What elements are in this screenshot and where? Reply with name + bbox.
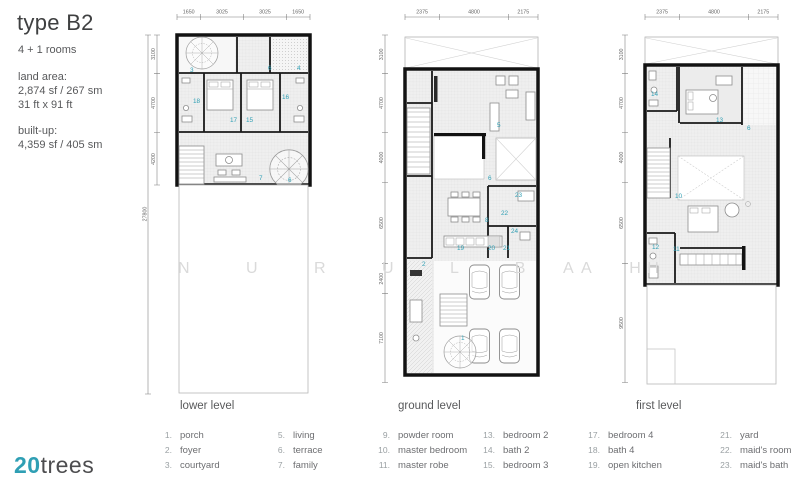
room-number: 19 bbox=[457, 245, 465, 252]
dimension-label: 4800 bbox=[708, 10, 720, 16]
legend-item: 7.family bbox=[265, 458, 323, 473]
legend-item-label: bath 4 bbox=[608, 443, 634, 458]
floorplan-sheet: type B2 4 + 1 rooms land area: 2,874 sf … bbox=[0, 0, 800, 477]
legend-item-number: 10. bbox=[370, 443, 390, 458]
dimension-label: 2375 bbox=[416, 10, 428, 16]
staircase bbox=[407, 108, 430, 174]
land-area-block: land area: 2,874 sf / 267 sm 31 ft x 91 … bbox=[18, 70, 102, 112]
legend-item-label: living bbox=[293, 428, 315, 443]
legend-item: 14.bath 2 bbox=[475, 443, 548, 458]
legend-item-label: courtyard bbox=[180, 458, 220, 473]
ground-level-floor-plan: 2375 4800 2175 3100 4700 4000 6500 2400 … bbox=[368, 8, 548, 398]
legend-item: 13.bedroom 2 bbox=[475, 428, 548, 443]
legend-item: 2.foyer bbox=[152, 443, 265, 458]
legend-item: 21.yard bbox=[712, 428, 791, 443]
room-number: 5 bbox=[497, 122, 501, 129]
yard-outline bbox=[179, 185, 308, 393]
legend-title: lower level bbox=[180, 400, 372, 412]
dimension-label: 3025 bbox=[259, 10, 271, 16]
legend-item-number: 7. bbox=[265, 458, 285, 473]
dimension-label: 1650 bbox=[183, 10, 195, 16]
dimension-label: 4200 bbox=[151, 153, 157, 165]
garage-staircase bbox=[440, 294, 467, 326]
open-roof-pergola bbox=[645, 37, 778, 65]
room-number: 17 bbox=[230, 117, 238, 124]
dimension-label: 6500 bbox=[379, 217, 385, 229]
room-number: 18 bbox=[193, 98, 201, 105]
legend-item: 10.master bedroom bbox=[370, 443, 475, 458]
open-roof-pergola bbox=[405, 37, 538, 69]
legend-item-label: maid's bath bbox=[740, 458, 788, 473]
dimension-label: 2375 bbox=[656, 10, 668, 16]
legend-item-label: maid's room bbox=[740, 443, 791, 458]
legend-item-number: 19. bbox=[580, 458, 600, 473]
room-number: 8 bbox=[485, 217, 489, 224]
room-number: 13 bbox=[716, 117, 724, 124]
room-number: 3 bbox=[190, 67, 194, 74]
room-number: 6 bbox=[288, 177, 292, 184]
room-number: 2 bbox=[422, 261, 426, 268]
legend-item-number: 14. bbox=[475, 443, 495, 458]
legend-item: 17.bedroom 4 bbox=[580, 428, 712, 443]
terrace-opening bbox=[496, 138, 536, 180]
legend-item-number: 3. bbox=[152, 458, 172, 473]
room-number: 21 bbox=[503, 245, 511, 252]
legend-ground-level: ground level 9.powder room 10.master bed… bbox=[370, 400, 590, 473]
room-number: 16 bbox=[282, 94, 290, 101]
legend-item-number: 18. bbox=[580, 443, 600, 458]
legend-item-label: open kitchen bbox=[608, 458, 662, 473]
legend-item-label: bath 2 bbox=[503, 443, 529, 458]
room-number: 11 bbox=[673, 246, 680, 253]
legend-item-number: 2. bbox=[152, 443, 172, 458]
yard-outline bbox=[647, 285, 776, 384]
dimension-label: 4000 bbox=[619, 152, 625, 164]
legend-item: 6.terrace bbox=[265, 443, 323, 458]
legend-item-number: 15. bbox=[475, 458, 495, 473]
legend-item-number: 21. bbox=[712, 428, 732, 443]
dimension-label: 3025 bbox=[216, 10, 228, 16]
dimension-label: 6500 bbox=[619, 217, 625, 229]
dimension-label: 2175 bbox=[517, 10, 529, 16]
staircase bbox=[179, 146, 204, 184]
legend-item-number: 23. bbox=[712, 458, 732, 473]
dimension-label: 4000 bbox=[379, 152, 385, 164]
room-number: 4 bbox=[297, 65, 301, 72]
staircase bbox=[647, 148, 670, 198]
entry-tree bbox=[444, 336, 476, 368]
developer-logo: 20trees bbox=[14, 452, 94, 477]
dimension-label: 27800 bbox=[143, 207, 149, 222]
legend-item-label: yard bbox=[740, 428, 758, 443]
legend-item-number: 11. bbox=[370, 458, 390, 473]
legend-item: 19.open kitchen bbox=[580, 458, 712, 473]
room-number: 10 bbox=[675, 193, 683, 200]
legend-item-number: 17. bbox=[580, 428, 600, 443]
room-number: 15 bbox=[246, 117, 254, 124]
room-number: 1 bbox=[461, 335, 465, 342]
dimension-label: 3100 bbox=[379, 48, 385, 60]
legend-item-label: family bbox=[293, 458, 318, 473]
logo-word: trees bbox=[41, 452, 95, 477]
legend-first-level: first level 17.bedroom 4 18.bath 4 19.op… bbox=[580, 400, 800, 473]
legend-item: 11.master robe bbox=[370, 458, 475, 473]
land-area-dims: 31 ft x 91 ft bbox=[18, 98, 102, 112]
legend-item: 3.courtyard bbox=[152, 458, 265, 473]
room-number: 7 bbox=[259, 175, 263, 182]
room-number: 12 bbox=[652, 244, 660, 251]
legend-title: ground level bbox=[398, 400, 590, 412]
legend-item: 15.bedroom 3 bbox=[475, 458, 548, 473]
legend-item-number: 1. bbox=[152, 428, 172, 443]
legend-item: 23.maid's bath bbox=[712, 458, 791, 473]
logo-number: 20 bbox=[14, 452, 41, 477]
room-number: 6 bbox=[747, 125, 751, 132]
dimension-label: 2400 bbox=[379, 273, 385, 285]
legend-item-label: bedroom 4 bbox=[608, 428, 653, 443]
room-number: 14 bbox=[651, 91, 659, 98]
legend-item-number: 13. bbox=[475, 428, 495, 443]
dining-furniture bbox=[448, 192, 480, 222]
legend-lower-level: lower level 1.porch 2.foyer 3.courtyard … bbox=[152, 400, 372, 473]
dimension-label: 4700 bbox=[379, 97, 385, 109]
void-opening bbox=[434, 133, 486, 179]
room-number: 6 bbox=[488, 175, 492, 182]
dimension-label: 3100 bbox=[151, 48, 157, 60]
room-number: 23 bbox=[515, 192, 523, 199]
dimension-label: 7100 bbox=[379, 332, 385, 344]
first-level-floor-plan: 2375 4800 2175 3100 4700 4000 6500 9500 bbox=[608, 8, 798, 398]
rooms-count: 4 + 1 rooms bbox=[18, 44, 76, 56]
terrace-floor bbox=[742, 67, 776, 125]
dimension-label: 4700 bbox=[619, 97, 625, 109]
dimension-label: 4800 bbox=[468, 10, 480, 16]
legend-item-label: porch bbox=[180, 428, 204, 443]
legend-item-label: powder room bbox=[398, 428, 453, 443]
legend-item-label: terrace bbox=[293, 443, 323, 458]
legend-item: 9.powder room bbox=[370, 428, 475, 443]
legend-item-label: bedroom 3 bbox=[503, 458, 548, 473]
built-up-label: built-up: bbox=[18, 124, 102, 138]
legend-item: 22.maid's room bbox=[712, 443, 791, 458]
legend-item-label: master robe bbox=[398, 458, 449, 473]
legend-title: first level bbox=[636, 400, 800, 412]
dimension-label: 4700 bbox=[151, 97, 157, 109]
built-up-value: 4,359 sf / 405 sm bbox=[18, 138, 102, 152]
room-number: 24 bbox=[511, 228, 519, 235]
legend-item-number: 22. bbox=[712, 443, 732, 458]
room-number: 20 bbox=[488, 245, 496, 252]
legend-item-label: foyer bbox=[180, 443, 201, 458]
land-area-label: land area: bbox=[18, 70, 102, 84]
land-area-value: 2,874 sf / 267 sm bbox=[18, 84, 102, 98]
legend-item-label: bedroom 2 bbox=[503, 428, 548, 443]
room-number: 22 bbox=[501, 210, 509, 217]
legend-item: 1.porch bbox=[152, 428, 265, 443]
dimension-label: 9500 bbox=[619, 317, 625, 329]
legend-item-number: 5. bbox=[265, 428, 285, 443]
dimension-label: 3100 bbox=[619, 48, 625, 60]
courtyard-tree bbox=[186, 37, 218, 69]
room-number: 6 bbox=[268, 65, 272, 72]
legend-item: 18.bath 4 bbox=[580, 443, 712, 458]
dimension-label: 1650 bbox=[292, 10, 304, 16]
void-opening bbox=[678, 156, 744, 200]
legend-item-number: 6. bbox=[265, 443, 285, 458]
legend-item-label: master bedroom bbox=[398, 443, 467, 458]
dimension-label: 2175 bbox=[757, 10, 769, 16]
page-title: type B2 bbox=[17, 10, 94, 36]
lower-level-floor-plan: 1650 3025 3025 1650 3100 4700 4200 27800 bbox=[140, 8, 320, 398]
legend-item-number: 9. bbox=[370, 428, 390, 443]
built-up-block: built-up: 4,359 sf / 405 sm bbox=[18, 124, 102, 152]
legend-item: 5.living bbox=[265, 428, 323, 443]
